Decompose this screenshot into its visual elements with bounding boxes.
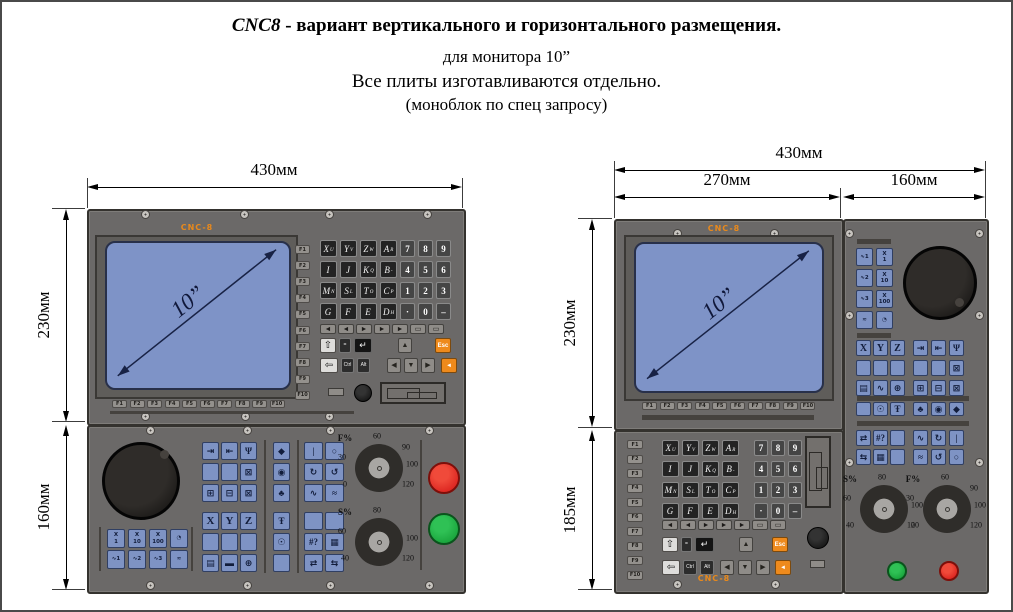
dimension-arrowhead bbox=[63, 425, 69, 436]
key-letter-G[interactable]: G bbox=[320, 303, 337, 320]
fkey-bottom-F9[interactable]: F9 bbox=[252, 400, 267, 408]
screw-icon bbox=[146, 426, 155, 435]
wide-key-3[interactable]: ► bbox=[356, 324, 372, 334]
input-key[interactable]: ◄ bbox=[441, 358, 457, 373]
title-line-1: CNC8 - вариант вертикального и горизонта… bbox=[232, 15, 781, 37]
up-arrow-key[interactable]: ⇧ bbox=[662, 537, 678, 552]
ctrl-key[interactable]: Ctrl bbox=[341, 358, 354, 373]
fkey-row-F10[interactable]: F10 bbox=[800, 402, 815, 410]
fkey-side-F10[interactable]: F10 bbox=[295, 391, 310, 400]
mid-key[interactable]: ⊕ bbox=[890, 380, 905, 396]
tool-change-key[interactable]: ⊞ bbox=[202, 484, 219, 502]
fkey-col-F1[interactable]: F1 bbox=[627, 440, 643, 449]
wide-key-1[interactable]: ◄ bbox=[662, 520, 678, 530]
key-num-·[interactable]: · bbox=[754, 503, 768, 519]
key-main-label: X bbox=[323, 244, 329, 254]
fkey-row-F5[interactable]: F5 bbox=[712, 402, 727, 410]
mid-key[interactable] bbox=[873, 360, 888, 376]
screen-key[interactable]: ▤ bbox=[202, 554, 219, 572]
gauge-center bbox=[377, 540, 382, 545]
screw-icon bbox=[771, 580, 780, 589]
extension-line bbox=[578, 218, 612, 219]
gauge-tick: 30 bbox=[906, 494, 914, 503]
key-letter-D[interactable]: DH bbox=[722, 503, 739, 519]
key-letter-X[interactable]: XU bbox=[662, 440, 679, 456]
fkey-side-F4[interactable]: F4 bbox=[295, 294, 310, 303]
step-key[interactable]: ≂ bbox=[170, 550, 188, 569]
chip-forward-key[interactable]: ∿ bbox=[304, 484, 323, 502]
floppy-drive[interactable] bbox=[805, 436, 831, 508]
blank-key[interactable] bbox=[273, 554, 290, 572]
spindle-cw-key[interactable]: ↻ bbox=[304, 463, 323, 481]
key-num-2[interactable]: 2 bbox=[771, 482, 785, 498]
wide-key-7[interactable]: ▭ bbox=[770, 520, 786, 530]
screw-icon bbox=[243, 581, 252, 590]
step-key[interactable]: X 10 bbox=[128, 529, 146, 548]
dimension-label: 185мм bbox=[560, 486, 580, 533]
step-key[interactable]: ∿2 bbox=[856, 269, 873, 287]
axis-y-key[interactable]: Y bbox=[221, 512, 238, 530]
key-num-9[interactable]: 9 bbox=[788, 440, 802, 456]
input-key[interactable]: ◄ bbox=[775, 560, 791, 575]
key-letter-A[interactable]: AR bbox=[380, 240, 397, 257]
screw-icon bbox=[326, 426, 335, 435]
key-letter-D[interactable]: DH bbox=[380, 303, 397, 320]
cursor-left-key[interactable]: ◀ bbox=[720, 560, 734, 575]
key-main-label: Y bbox=[686, 443, 691, 453]
fkey-side-F8[interactable]: F8 bbox=[295, 358, 310, 367]
low-key[interactable]: ⇆ bbox=[856, 449, 871, 465]
dimension-arrowhead bbox=[589, 430, 595, 441]
divider-bar bbox=[110, 411, 354, 414]
key-letter-I[interactable]: I bbox=[320, 261, 337, 278]
cursor-down-key[interactable]: ▼ bbox=[738, 560, 752, 575]
wide-key-3[interactable]: ► bbox=[698, 520, 714, 530]
dimension-arrowhead bbox=[589, 416, 595, 427]
backspace-key[interactable]: ⇦ bbox=[320, 358, 338, 373]
key-num-2[interactable]: 2 bbox=[418, 282, 433, 299]
key-num-8[interactable]: 8 bbox=[771, 440, 785, 456]
key-letter-M[interactable]: MN bbox=[662, 482, 679, 498]
key-main-label: A bbox=[726, 443, 732, 453]
ref-approach-key[interactable]: ⇥ bbox=[202, 442, 219, 460]
target-key[interactable]: ◉ bbox=[273, 463, 290, 481]
divider-bar bbox=[191, 527, 193, 571]
blank-key[interactable] bbox=[202, 533, 219, 551]
power-knob[interactable] bbox=[354, 384, 372, 402]
step-key[interactable]: X 1 bbox=[107, 529, 125, 548]
up-arrow-key[interactable]: ⇧ bbox=[320, 338, 336, 353]
equals-key[interactable]: = bbox=[681, 537, 692, 552]
key-num-·[interactable]: · bbox=[400, 303, 415, 320]
cursor-right-key[interactable]: ▶ bbox=[756, 560, 770, 575]
step-key[interactable]: X 100 bbox=[149, 529, 167, 548]
screw-icon bbox=[240, 210, 249, 219]
low-key[interactable]: | bbox=[949, 430, 964, 446]
mid-key[interactable]: Ψ bbox=[949, 340, 964, 356]
mid-key[interactable]: ⊟ bbox=[931, 380, 946, 396]
cursor-down-key[interactable]: ▼ bbox=[404, 358, 418, 373]
key-main-label: D bbox=[725, 506, 732, 516]
step-key[interactable]: ∿1 bbox=[107, 550, 125, 569]
key-num-9[interactable]: 9 bbox=[436, 240, 451, 257]
wide-key-4[interactable]: ► bbox=[374, 324, 390, 334]
key-num-3[interactable]: 3 bbox=[436, 282, 451, 299]
key-main-label: Y bbox=[344, 244, 349, 254]
fkey-col-F6[interactable]: F6 bbox=[627, 513, 643, 522]
step-key[interactable]: X 100 bbox=[876, 290, 893, 308]
wide-key-5[interactable]: ► bbox=[734, 520, 750, 530]
fkey-bottom-F3[interactable]: F3 bbox=[147, 400, 162, 408]
key-letter-Y[interactable]: YV bbox=[682, 440, 699, 456]
key-num-6[interactable]: 6 bbox=[436, 261, 451, 278]
key-letter-X[interactable]: XU bbox=[320, 240, 337, 257]
low-key[interactable]: ▦ bbox=[873, 449, 888, 465]
fkey-side-F7[interactable]: F7 bbox=[295, 342, 310, 351]
key-sub-label: R bbox=[732, 448, 735, 453]
key-sub-label: N bbox=[331, 290, 334, 295]
dimension-arrowhead bbox=[843, 194, 854, 200]
ctrl-key[interactable]: Ctrl bbox=[683, 560, 697, 575]
blank-key[interactable] bbox=[202, 463, 219, 481]
backspace-key[interactable]: ⇦ bbox=[662, 560, 680, 575]
extension-line bbox=[52, 421, 85, 422]
alt-key[interactable]: Alt bbox=[700, 560, 714, 575]
dimension-line bbox=[66, 435, 67, 580]
help-key[interactable]: #? bbox=[304, 533, 323, 551]
mid-key[interactable] bbox=[931, 360, 946, 376]
key-letter-C[interactable]: CP bbox=[380, 282, 397, 299]
jog-wheel[interactable] bbox=[903, 246, 977, 320]
screw-icon bbox=[673, 580, 682, 589]
screw-icon bbox=[845, 311, 854, 320]
key-letter-Y[interactable]: YV bbox=[340, 240, 357, 257]
tool-jog-key[interactable]: ⊟ bbox=[221, 484, 238, 502]
wide-key-7[interactable]: ▭ bbox=[428, 324, 444, 334]
key-num-–[interactable]: – bbox=[788, 503, 802, 519]
step-key[interactable]: X 10 bbox=[876, 269, 893, 287]
mid-key[interactable] bbox=[856, 360, 871, 376]
enter-key[interactable]: ↵ bbox=[354, 338, 372, 353]
fkey-row-F3[interactable]: F3 bbox=[677, 402, 692, 410]
fkey-side-F2[interactable]: F2 bbox=[295, 261, 310, 270]
key-sub-label: Q bbox=[370, 269, 374, 274]
fkey-bottom-F4[interactable]: F4 bbox=[165, 400, 180, 408]
floppy-eject bbox=[816, 467, 828, 489]
key-main-label: C bbox=[383, 286, 389, 296]
key-letter-B[interactable]: B- bbox=[722, 461, 739, 477]
key-letter-K[interactable]: KQ bbox=[360, 261, 377, 278]
key-main-label: C bbox=[725, 485, 731, 495]
icon-key[interactable]: ◆ bbox=[949, 402, 964, 416]
gauge-tick: 120 bbox=[402, 480, 414, 489]
esc-key[interactable]: Esc bbox=[435, 338, 451, 353]
key-num-–[interactable]: – bbox=[436, 303, 451, 320]
wide-key-2[interactable]: ◄ bbox=[338, 324, 354, 334]
key-num-4[interactable]: 4 bbox=[754, 461, 768, 477]
fkey-bottom-F5[interactable]: F5 bbox=[182, 400, 197, 408]
table-key[interactable]: ▦ bbox=[325, 533, 344, 551]
rapid-key[interactable]: ◆ bbox=[273, 442, 290, 460]
key-num-4[interactable]: 4 bbox=[400, 261, 415, 278]
mid-key[interactable]: ⇥ bbox=[913, 340, 928, 356]
key-letter-Z[interactable]: ZW bbox=[702, 440, 719, 456]
power-knob[interactable] bbox=[807, 527, 829, 549]
extension-line bbox=[52, 589, 85, 590]
fkey-side-F9[interactable]: F9 bbox=[295, 375, 310, 384]
icon-key[interactable]: ♣ bbox=[913, 402, 928, 416]
axis-x-key[interactable]: X bbox=[202, 512, 219, 530]
key-main-label: T bbox=[706, 485, 711, 495]
fkey-bottom-F10[interactable]: F10 bbox=[270, 400, 285, 408]
fkey-col-F10[interactable]: F10 bbox=[627, 571, 643, 580]
key-main-label: S bbox=[344, 286, 349, 296]
key-letter-M[interactable]: MN bbox=[320, 282, 337, 299]
cursor-left-key[interactable]: ◀ bbox=[387, 358, 401, 373]
fkey-row-F1[interactable]: F1 bbox=[642, 402, 657, 410]
key-num-1[interactable]: 1 bbox=[400, 282, 415, 299]
icon-key[interactable] bbox=[856, 402, 871, 416]
mid-key[interactable]: X bbox=[856, 340, 871, 356]
fkey-col-F4[interactable]: F4 bbox=[627, 484, 643, 493]
key-letter-B[interactable]: B- bbox=[380, 261, 397, 278]
key-letter-A[interactable]: AR bbox=[722, 440, 739, 456]
step-key[interactable]: ≂ bbox=[856, 311, 873, 329]
wide-key-4[interactable]: ► bbox=[716, 520, 732, 530]
page-up-key[interactable]: ▲ bbox=[398, 338, 412, 353]
battery-key[interactable]: ▬ bbox=[221, 554, 238, 572]
screen-diagonal-label: 10” bbox=[697, 282, 741, 324]
step-key[interactable]: X 1 bbox=[876, 248, 893, 266]
key-main-label: I bbox=[669, 464, 672, 474]
key-main-label: X bbox=[665, 443, 671, 453]
step-key[interactable]: ∿3 bbox=[856, 290, 873, 308]
work-light-key[interactable]: ☉ bbox=[273, 533, 290, 551]
wide-key-2[interactable]: ◄ bbox=[680, 520, 696, 530]
manual-mode-key[interactable]: Ψ bbox=[240, 442, 257, 460]
low-key[interactable]: ○ bbox=[949, 449, 964, 465]
mid-key[interactable]: Y bbox=[873, 340, 888, 356]
zero-point-key[interactable]: ⊕ bbox=[240, 554, 257, 572]
icon-key[interactable]: ◉ bbox=[931, 402, 946, 416]
key-sub-label: L bbox=[350, 290, 353, 295]
low-key[interactable]: ↻ bbox=[931, 430, 946, 446]
dimension-arrowhead bbox=[63, 209, 69, 220]
fkey-bottom-F2[interactable]: F2 bbox=[130, 400, 145, 408]
key-letter-E[interactable]: E bbox=[702, 503, 719, 519]
fkey-col-F3[interactable]: F3 bbox=[627, 469, 643, 478]
key-main-label: E bbox=[707, 506, 713, 516]
mid-key[interactable]: ⇤ bbox=[931, 340, 946, 356]
fkey-col-F8[interactable]: F8 bbox=[627, 542, 643, 551]
low-key[interactable]: ≈ bbox=[913, 449, 928, 465]
fkey-bottom-F7[interactable]: F7 bbox=[217, 400, 232, 408]
step-key[interactable]: ∿3 bbox=[149, 550, 167, 569]
blank-key[interactable] bbox=[304, 512, 323, 530]
machine-start-button[interactable] bbox=[428, 513, 460, 545]
key-letter-I[interactable]: I bbox=[662, 461, 679, 477]
key-sub-label: O bbox=[370, 290, 374, 295]
mid-key[interactable]: Z bbox=[890, 340, 905, 356]
key-num-1[interactable]: 1 bbox=[754, 482, 768, 498]
divider-bar bbox=[264, 440, 266, 573]
machine-stop-button[interactable] bbox=[939, 561, 959, 581]
mid-key[interactable]: ▤ bbox=[856, 380, 871, 396]
alt-key[interactable]: Alt bbox=[357, 358, 370, 373]
screen-diagonal-arrow: 10” bbox=[634, 242, 820, 389]
key-main-label: M bbox=[323, 286, 331, 296]
key-num-7[interactable]: 7 bbox=[400, 240, 415, 257]
tool-set-key[interactable]: ⊠ bbox=[240, 484, 257, 502]
key-num-5[interactable]: 5 bbox=[418, 261, 433, 278]
divider-bar bbox=[642, 415, 814, 420]
wide-key-5[interactable]: ► bbox=[392, 324, 408, 334]
fkey-side-F1[interactable]: F1 bbox=[295, 245, 310, 254]
key-sub-label: R bbox=[390, 248, 393, 253]
equals-key[interactable]: = bbox=[339, 338, 351, 353]
floppy-drive[interactable] bbox=[380, 382, 446, 404]
fkey-side-F3[interactable]: F3 bbox=[295, 277, 310, 286]
key-letter-F[interactable]: F bbox=[340, 303, 357, 320]
fkey-col-F7[interactable]: F7 bbox=[627, 527, 643, 536]
key-main-label: M bbox=[665, 485, 673, 495]
key-num-0[interactable]: 0 bbox=[771, 503, 785, 519]
fkey-row-F2[interactable]: F2 bbox=[660, 402, 675, 410]
key-main-label: Z bbox=[363, 244, 368, 254]
key-main-label: J bbox=[688, 464, 692, 474]
enter-key[interactable]: ↵ bbox=[695, 537, 714, 552]
gauge-tick: 40 bbox=[846, 521, 854, 530]
step-key[interactable]: ∿2 bbox=[128, 550, 146, 569]
dimension-label: 430мм bbox=[775, 143, 822, 163]
chip-reverse-key[interactable]: ≈ bbox=[325, 484, 344, 502]
dimension-arrowhead bbox=[451, 184, 462, 190]
fkey-bottom-F1[interactable]: F1 bbox=[112, 400, 127, 408]
step-key[interactable]: ◔ bbox=[876, 311, 893, 329]
mid-key[interactable]: ⊞ bbox=[913, 380, 928, 396]
key-sub-label: O bbox=[712, 490, 716, 495]
blank-key[interactable] bbox=[221, 463, 238, 481]
wide-key-6[interactable]: ▭ bbox=[410, 324, 426, 334]
key-num-3[interactable]: 3 bbox=[788, 482, 802, 498]
key-letter-T[interactable]: TO bbox=[360, 282, 377, 299]
fkey-bottom-F8[interactable]: F8 bbox=[235, 400, 250, 408]
key-num-7[interactable]: 7 bbox=[754, 440, 768, 456]
mid-key[interactable]: ⊠ bbox=[949, 360, 964, 376]
key-letter-Z[interactable]: ZW bbox=[360, 240, 377, 257]
dimension-label: 160мм bbox=[34, 483, 54, 530]
key-main-label: F bbox=[345, 307, 351, 317]
fkey-row-F4[interactable]: F4 bbox=[695, 402, 710, 410]
icon-key[interactable]: Ŧ bbox=[890, 402, 905, 416]
fkey-col-F9[interactable]: F9 bbox=[627, 556, 643, 565]
fkey-row-F7[interactable]: F7 bbox=[748, 402, 763, 410]
mid-key[interactable]: ∿ bbox=[873, 380, 888, 396]
key-num-8[interactable]: 8 bbox=[418, 240, 433, 257]
indicator-window bbox=[810, 560, 825, 568]
tool-clamp-key[interactable]: ⊠ bbox=[240, 463, 257, 481]
low-key[interactable]: ∿ bbox=[913, 430, 928, 446]
key-letter-T[interactable]: TO bbox=[702, 482, 719, 498]
fkey-row-F6[interactable]: F6 bbox=[730, 402, 745, 410]
low-key[interactable]: #? bbox=[873, 430, 888, 446]
blank-key[interactable] bbox=[221, 533, 238, 551]
mid-key[interactable] bbox=[913, 360, 928, 376]
low-key[interactable] bbox=[890, 449, 905, 465]
key-letter-S[interactable]: SL bbox=[682, 482, 699, 498]
esc-key[interactable]: Esc bbox=[772, 537, 788, 552]
extension-line bbox=[840, 188, 841, 218]
traverse-key[interactable]: ⇄ bbox=[304, 554, 323, 572]
key-main-label: G bbox=[667, 506, 674, 516]
gauge-center bbox=[945, 507, 950, 512]
title-line-2: для монитора 10” bbox=[443, 47, 570, 67]
screw-icon bbox=[146, 581, 155, 590]
mid-key[interactable]: ⊠ bbox=[949, 380, 964, 396]
key-letter-E[interactable]: E bbox=[360, 303, 377, 320]
axis-z-key[interactable]: Z bbox=[240, 512, 257, 530]
screw-icon bbox=[975, 458, 984, 467]
cursor-right-key[interactable]: ▶ bbox=[421, 358, 435, 373]
divider-bar bbox=[857, 333, 891, 338]
low-key[interactable]: ↺ bbox=[931, 449, 946, 465]
mist-key[interactable]: ♣ bbox=[273, 484, 290, 502]
gauge-tick: 80 bbox=[373, 506, 381, 515]
key-letter-J[interactable]: J bbox=[340, 261, 357, 278]
dimension-line bbox=[592, 440, 593, 580]
step-key[interactable]: ∿1 bbox=[856, 248, 873, 266]
key-num-5[interactable]: 5 bbox=[771, 461, 785, 477]
fkey-col-F5[interactable]: F5 bbox=[627, 498, 643, 507]
key-sub-label: L bbox=[692, 490, 695, 495]
key-num-0[interactable]: 0 bbox=[418, 303, 433, 320]
blank-key[interactable] bbox=[240, 533, 257, 551]
key-letter-J[interactable]: J bbox=[682, 461, 699, 477]
fkey-row-F9[interactable]: F9 bbox=[783, 402, 798, 410]
wide-key-1[interactable]: ◄ bbox=[320, 324, 336, 334]
key-num-6[interactable]: 6 bbox=[788, 461, 802, 477]
key-letter-C[interactable]: CP bbox=[722, 482, 739, 498]
fkey-row-F8[interactable]: F8 bbox=[765, 402, 780, 410]
dimension-label: 160мм bbox=[890, 170, 937, 190]
icon-key[interactable]: ☉ bbox=[873, 402, 888, 416]
wide-key-6[interactable]: ▭ bbox=[752, 520, 768, 530]
key-letter-F[interactable]: F bbox=[682, 503, 699, 519]
spindle-start-key[interactable]: | bbox=[304, 442, 323, 460]
coolant-key[interactable]: Ŧ bbox=[273, 512, 290, 530]
key-main-label: K bbox=[705, 464, 711, 474]
page-up-key[interactable]: ▲ bbox=[739, 537, 753, 552]
jog-wheel-dimple bbox=[160, 450, 169, 459]
key-letter-S[interactable]: SL bbox=[340, 282, 357, 299]
low-key[interactable]: ⇄ bbox=[856, 430, 871, 446]
fkey-bottom-F6[interactable]: F6 bbox=[200, 400, 215, 408]
mid-key[interactable] bbox=[890, 360, 905, 376]
dimension-arrowhead bbox=[974, 194, 985, 200]
key-main-label: B bbox=[384, 265, 390, 275]
ref-return-key[interactable]: ⇤ bbox=[221, 442, 238, 460]
spindle-ccw-key[interactable]: ↺ bbox=[325, 463, 344, 481]
machine-stop-button[interactable] bbox=[428, 462, 460, 494]
step-key[interactable]: ◔ bbox=[170, 529, 188, 548]
fkey-side-F6[interactable]: F6 bbox=[295, 326, 310, 335]
machine-start-button[interactable] bbox=[887, 561, 907, 581]
key-letter-K[interactable]: KQ bbox=[702, 461, 719, 477]
low-key[interactable] bbox=[890, 430, 905, 446]
fkey-side-F5[interactable]: F5 bbox=[295, 310, 310, 319]
key-letter-G[interactable]: G bbox=[662, 503, 679, 519]
fkey-col-F2[interactable]: F2 bbox=[627, 455, 643, 464]
